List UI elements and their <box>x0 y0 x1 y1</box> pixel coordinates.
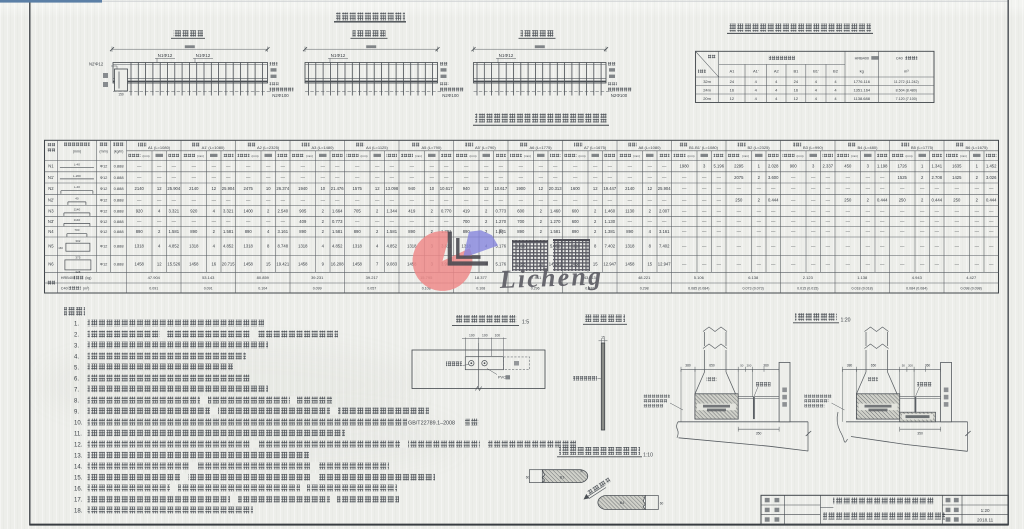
svg-text:—: — <box>573 197 578 202</box>
svg-text:890: 890 <box>354 229 362 234</box>
svg-text:250: 250 <box>953 197 961 202</box>
svg-text:0.888: 0.888 <box>114 175 125 180</box>
svg-text:—: — <box>880 186 885 191</box>
svg-text:15.: 15. <box>74 476 83 482</box>
svg-text:—: — <box>682 229 687 234</box>
svg-text:700: 700 <box>74 228 79 232</box>
svg-text:—: — <box>519 175 524 180</box>
svg-text:24m: 24m <box>703 87 711 92</box>
svg-text:2: 2 <box>322 229 325 234</box>
svg-text:60: 60 <box>526 476 530 480</box>
svg-text:7: 7 <box>376 261 379 266</box>
svg-text:2018.11: 2018.11 <box>977 518 994 523</box>
svg-text:10.617: 10.617 <box>440 186 453 191</box>
svg-text:250: 250 <box>899 197 907 202</box>
svg-text:—: — <box>757 186 762 191</box>
svg-text:4: 4 <box>815 79 818 84</box>
svg-text:—: — <box>826 186 831 191</box>
svg-text:0.888: 0.888 <box>114 208 125 213</box>
svg-text:B4 (L=480): B4 (L=480) <box>858 145 879 150</box>
svg-text:—: — <box>648 164 653 169</box>
svg-text:7.: 7. <box>74 388 79 394</box>
svg-text:—: — <box>410 197 415 202</box>
svg-text:53.143: 53.143 <box>202 275 215 280</box>
svg-text:4.: 4. <box>74 355 79 361</box>
svg-text:12.: 12. <box>74 443 83 449</box>
svg-text:890: 890 <box>245 229 253 234</box>
svg-text:60: 60 <box>660 502 664 506</box>
svg-text:—: — <box>390 219 395 224</box>
svg-text:20m: 20m <box>703 96 711 101</box>
svg-text:—: — <box>444 219 449 224</box>
svg-text:2: 2 <box>267 208 270 213</box>
svg-text:—: — <box>975 244 980 249</box>
svg-text:—: — <box>519 164 524 169</box>
svg-text:—: — <box>519 197 524 202</box>
svg-text:—: — <box>900 261 905 266</box>
svg-text:—: — <box>444 164 449 169</box>
svg-text:—: — <box>464 197 469 202</box>
svg-text:—: — <box>539 197 544 202</box>
svg-text:1: 1 <box>976 164 979 169</box>
svg-text:0.091: 0.091 <box>204 287 213 291</box>
svg-text:4.852: 4.852 <box>169 244 180 249</box>
svg-text:—: — <box>935 261 940 266</box>
svg-text:11.: 11. <box>74 432 82 438</box>
svg-text:—: — <box>355 197 360 202</box>
svg-text:—: — <box>866 229 871 234</box>
svg-text:1318: 1318 <box>625 244 635 249</box>
svg-text:1.270: 1.270 <box>550 219 561 224</box>
svg-text:—: — <box>880 175 885 180</box>
svg-text:4.943: 4.943 <box>912 275 923 280</box>
svg-text:302: 302 <box>75 239 80 243</box>
svg-text:17.: 17. <box>74 498 83 504</box>
svg-text:—: — <box>880 229 885 234</box>
svg-text:700: 700 <box>463 219 471 224</box>
svg-text:21.476: 21.476 <box>331 186 344 191</box>
svg-text:1.581: 1.581 <box>332 229 343 234</box>
svg-text:—: — <box>771 261 776 266</box>
svg-text:1: 1 <box>921 164 924 169</box>
svg-text:3: 3 <box>703 164 706 169</box>
svg-text:4: 4 <box>376 244 379 249</box>
svg-text:380: 380 <box>685 363 691 367</box>
svg-text:3: 3 <box>812 164 815 169</box>
svg-text:18.377: 18.377 <box>475 275 488 280</box>
svg-text:—: — <box>975 186 980 191</box>
svg-text:360: 360 <box>763 363 769 367</box>
svg-text:B1: B1 <box>793 68 799 73</box>
svg-text:—: — <box>900 219 905 224</box>
svg-text:1318: 1318 <box>353 244 363 249</box>
svg-text:12: 12 <box>593 186 598 191</box>
svg-text:—: — <box>375 164 380 169</box>
svg-text:16: 16 <box>211 261 216 266</box>
svg-text:9.083: 9.083 <box>387 261 398 266</box>
svg-text:(mm): (mm) <box>143 154 150 158</box>
svg-text:L-40: L-40 <box>74 163 80 167</box>
svg-text:2: 2 <box>649 208 652 213</box>
svg-text:0.015 (0.015): 0.015 (0.015) <box>797 287 818 291</box>
svg-text:2: 2 <box>867 197 870 202</box>
svg-text:—: — <box>648 175 653 180</box>
svg-text:—: — <box>172 219 177 224</box>
svg-text:13.098: 13.098 <box>385 186 398 191</box>
svg-text:(mm): (mm) <box>579 154 586 158</box>
svg-text:—: — <box>410 219 415 224</box>
svg-text:80.859: 80.859 <box>257 275 270 280</box>
svg-text:1.581: 1.581 <box>387 229 398 234</box>
svg-text:—: — <box>662 197 667 202</box>
svg-text:—: — <box>301 175 306 180</box>
svg-text:—: — <box>192 219 197 224</box>
svg-text:A7 (L=1675): A7 (L=1675) <box>584 145 607 150</box>
svg-text:—: — <box>539 164 544 169</box>
svg-text:A1: A1 <box>729 68 735 73</box>
svg-text:—: — <box>791 197 796 202</box>
svg-text:—: — <box>791 208 796 213</box>
svg-text:1.581: 1.581 <box>550 229 561 234</box>
svg-text:N1: N1 <box>48 164 54 169</box>
svg-text:—: — <box>484 164 489 169</box>
svg-text:—: — <box>662 164 667 169</box>
svg-text:0.057: 0.057 <box>367 287 376 291</box>
svg-text:—: — <box>717 219 722 224</box>
svg-text:—: — <box>375 197 380 202</box>
svg-text:—: — <box>811 208 816 213</box>
svg-text:0.104: 0.104 <box>258 287 267 291</box>
svg-text:16: 16 <box>730 87 735 92</box>
svg-text:—: — <box>608 164 613 169</box>
svg-text:N2Φ100: N2Φ100 <box>272 93 289 98</box>
svg-text:—: — <box>608 197 613 202</box>
svg-text:1525: 1525 <box>898 175 908 180</box>
svg-text:—: — <box>826 261 831 266</box>
svg-text:HRB400: HRB400 <box>855 57 869 61</box>
svg-text:N2Φ100: N2Φ100 <box>611 93 628 98</box>
svg-text:—: — <box>390 175 395 180</box>
svg-text:—: — <box>281 175 286 180</box>
svg-text:—: — <box>920 186 925 191</box>
svg-text:—: — <box>499 197 504 202</box>
svg-text:920: 920 <box>136 208 144 213</box>
svg-text:2140: 2140 <box>625 186 635 191</box>
svg-text:4: 4 <box>834 79 837 84</box>
svg-text:1980: 1980 <box>680 164 690 169</box>
svg-text:1.344: 1.344 <box>387 208 398 213</box>
svg-text:—: — <box>682 244 687 249</box>
svg-text:12: 12 <box>647 186 652 191</box>
svg-text:—: — <box>499 175 504 180</box>
svg-text:—: — <box>157 219 162 224</box>
svg-text:—: — <box>628 164 633 169</box>
svg-text:10.: 10. <box>74 421 83 427</box>
svg-text:—: — <box>246 164 251 169</box>
svg-text:N2'Φ12: N2'Φ12 <box>89 62 104 67</box>
svg-text:GB/T22789.1–2008: GB/T22789.1–2008 <box>408 421 455 427</box>
svg-text:Φ12: Φ12 <box>100 164 108 169</box>
svg-text:—: — <box>935 229 940 234</box>
svg-text:2: 2 <box>921 175 924 180</box>
svg-text:12: 12 <box>375 186 380 191</box>
svg-text:—: — <box>702 208 707 213</box>
svg-text:4: 4 <box>213 244 216 249</box>
svg-text:375: 375 <box>75 256 80 260</box>
svg-text:25.904: 25.904 <box>658 186 671 191</box>
svg-text:419: 419 <box>408 208 416 213</box>
svg-text:B2 (L=2325): B2 (L=2325) <box>748 145 771 150</box>
svg-text:—: — <box>846 244 851 249</box>
svg-text:2.708: 2.708 <box>932 175 943 180</box>
svg-text:(mm): (mm) <box>252 154 259 158</box>
svg-text:—: — <box>771 229 776 234</box>
svg-text:2.540: 2.540 <box>278 208 289 213</box>
svg-text:12: 12 <box>211 186 216 191</box>
svg-text:A2 (L=2325): A2 (L=2325) <box>257 145 280 150</box>
svg-text:1.460: 1.460 <box>605 208 616 213</box>
svg-text:1130: 1130 <box>625 208 635 213</box>
svg-text:Φ12: Φ12 <box>100 208 108 213</box>
svg-text:N1Φ12: N1Φ12 <box>196 53 211 58</box>
svg-text:4: 4 <box>322 244 325 249</box>
svg-text:—: — <box>212 164 217 169</box>
svg-text:—: — <box>771 186 776 191</box>
svg-text:0.018 (0.018): 0.018 (0.018) <box>852 287 873 291</box>
svg-text:B1.B1' (L=1080): B1.B1' (L=1080) <box>689 145 719 150</box>
svg-text:—: — <box>935 186 940 191</box>
svg-text:8: 8 <box>594 244 597 249</box>
svg-text:1.: 1. <box>74 322 79 328</box>
svg-text:1.138: 1.138 <box>857 275 868 280</box>
svg-text:kg: kg <box>860 68 864 73</box>
svg-text:—: — <box>662 219 667 224</box>
svg-text:2: 2 <box>758 175 761 180</box>
svg-text:—: — <box>321 197 326 202</box>
svg-text:—: — <box>662 175 667 180</box>
svg-text:—: — <box>920 244 925 249</box>
svg-text:160: 160 <box>58 246 63 250</box>
svg-text:—: — <box>717 197 722 202</box>
svg-text:15.526: 15.526 <box>167 261 180 266</box>
svg-text:—: — <box>192 197 197 202</box>
svg-text:—: — <box>920 219 925 224</box>
svg-text:—: — <box>846 208 851 213</box>
svg-text:—: — <box>157 164 162 169</box>
svg-text:PVC: PVC <box>498 376 506 380</box>
svg-text:—: — <box>935 244 940 249</box>
svg-text:0.773: 0.773 <box>332 219 343 224</box>
svg-text:1.460: 1.460 <box>550 208 561 213</box>
svg-text:39.217: 39.217 <box>366 275 379 280</box>
svg-text:1.381: 1.381 <box>605 229 616 234</box>
svg-text:N4: N4 <box>48 229 54 234</box>
svg-text:1:10: 1:10 <box>643 453 653 459</box>
svg-text:0.888: 0.888 <box>114 261 125 266</box>
svg-text:—: — <box>791 244 796 249</box>
svg-text:—: — <box>553 164 558 169</box>
svg-text:(mm): (mm) <box>73 150 81 154</box>
svg-text:—: — <box>593 175 598 180</box>
svg-text:—: — <box>737 219 742 224</box>
svg-text:—: — <box>900 244 905 249</box>
svg-text:10.617: 10.617 <box>494 186 507 191</box>
svg-text:—: — <box>811 229 816 234</box>
svg-text:—: — <box>846 261 851 266</box>
svg-text:—: — <box>266 175 271 180</box>
svg-text:1140: 1140 <box>74 207 81 211</box>
svg-text:N1': N1' <box>48 175 54 180</box>
svg-text:2: 2 <box>594 208 597 213</box>
svg-text:0.888: 0.888 <box>114 197 125 202</box>
svg-text:—: — <box>172 197 177 202</box>
svg-text:890: 890 <box>299 229 307 234</box>
svg-text:2295: 2295 <box>734 164 744 169</box>
svg-text:8: 8 <box>267 244 270 249</box>
svg-text:200: 200 <box>747 364 752 368</box>
svg-text:940: 940 <box>408 186 416 191</box>
svg-text:—: — <box>375 219 380 224</box>
svg-text:—: — <box>682 219 687 224</box>
svg-text:2.: 2. <box>74 333 79 339</box>
svg-text:—: — <box>791 186 796 191</box>
svg-text:705: 705 <box>354 208 362 213</box>
svg-text:890: 890 <box>626 229 634 234</box>
svg-text:Φ12: Φ12 <box>100 229 108 234</box>
svg-text:890: 890 <box>190 229 198 234</box>
svg-text:—: — <box>900 208 905 213</box>
svg-text:350: 350 <box>917 432 923 436</box>
svg-text:10: 10 <box>429 186 434 191</box>
svg-text:—: — <box>989 229 994 234</box>
svg-text:—: — <box>682 186 687 191</box>
svg-text:2: 2 <box>594 229 597 234</box>
svg-text:2.007: 2.007 <box>659 208 670 213</box>
svg-text:—: — <box>266 164 271 169</box>
svg-text:HRB400: HRB400 <box>61 276 75 280</box>
svg-text:—: — <box>826 244 831 249</box>
svg-text:24: 24 <box>730 79 735 84</box>
svg-text:4: 4 <box>213 208 216 213</box>
svg-text:2075: 2075 <box>734 175 744 180</box>
svg-text:890: 890 <box>517 229 525 234</box>
svg-text:—: — <box>975 208 980 213</box>
svg-text:—: — <box>499 164 504 169</box>
svg-text:—: — <box>989 261 994 266</box>
svg-text:(mm): (mm) <box>960 154 967 158</box>
svg-text:—: — <box>281 164 286 169</box>
svg-text:12: 12 <box>730 96 735 101</box>
svg-text:—: — <box>717 261 722 266</box>
svg-text:—: — <box>771 244 776 249</box>
svg-text:(mm): (mm) <box>415 154 422 158</box>
svg-text:—: — <box>573 175 578 180</box>
svg-text:20.313: 20.313 <box>549 186 562 191</box>
svg-text:(kg/m): (kg/m) <box>114 150 124 154</box>
svg-text:—: — <box>464 164 469 169</box>
svg-text:N2': N2' <box>48 197 54 202</box>
svg-text:N2: N2 <box>48 186 54 191</box>
svg-text:—: — <box>811 175 816 180</box>
svg-text:11.272 (11.242): 11.272 (11.242) <box>894 80 919 84</box>
svg-text:1.130: 1.130 <box>605 219 616 224</box>
svg-text:—: — <box>246 197 251 202</box>
svg-text:—: — <box>430 197 435 202</box>
svg-text:C40: C40 <box>896 57 903 61</box>
svg-text:—: — <box>880 219 885 224</box>
svg-text:2: 2 <box>485 219 488 224</box>
svg-text:1351.164: 1351.164 <box>853 87 870 92</box>
svg-text:1318: 1318 <box>298 244 308 249</box>
svg-text:1.581: 1.581 <box>223 229 234 234</box>
svg-text:B6 (L=1675): B6 (L=1675) <box>966 145 989 150</box>
svg-text:4: 4 <box>834 87 837 92</box>
svg-text:9: 9 <box>322 261 325 266</box>
svg-text:1940: 1940 <box>298 186 308 191</box>
svg-text:A2: A2 <box>774 68 780 73</box>
svg-text:32m: 32m <box>703 79 711 84</box>
svg-text:—: — <box>757 244 762 249</box>
svg-text:1318: 1318 <box>244 244 254 249</box>
svg-text:6.: 6. <box>74 377 79 383</box>
svg-text:—: — <box>880 244 885 249</box>
svg-text:—: — <box>975 261 980 266</box>
svg-text:—: — <box>172 164 177 169</box>
svg-text:7.120 (7.100): 7.120 (7.100) <box>896 97 917 101</box>
svg-text:B3: B3 <box>560 475 565 479</box>
svg-text:1458: 1458 <box>244 261 254 266</box>
svg-text:360: 360 <box>925 363 931 367</box>
svg-text:—: — <box>226 197 231 202</box>
svg-text:Φ12: Φ12 <box>100 244 108 249</box>
svg-text:1458: 1458 <box>189 261 199 266</box>
svg-text:—: — <box>157 175 162 180</box>
svg-text:—: — <box>335 197 340 202</box>
svg-text:0.084 (0.084): 0.084 (0.084) <box>906 287 927 291</box>
svg-text:—: — <box>935 219 940 224</box>
svg-text:1140: 1140 <box>74 218 81 222</box>
svg-text:1600: 1600 <box>571 186 581 191</box>
svg-text:890: 890 <box>572 229 580 234</box>
svg-text:890: 890 <box>408 229 416 234</box>
svg-text:—: — <box>717 208 722 213</box>
svg-text:5.196: 5.196 <box>714 164 725 169</box>
svg-text:—: — <box>593 164 598 169</box>
svg-text:16.208: 16.208 <box>331 261 344 266</box>
svg-text:2: 2 <box>540 208 543 213</box>
svg-text:0.298: 0.298 <box>640 287 649 291</box>
svg-text:—: — <box>702 197 707 202</box>
svg-text:—: — <box>539 175 544 180</box>
svg-text:Licheng: Licheng <box>498 261 603 294</box>
svg-text:—: — <box>826 175 831 180</box>
svg-text:A1': A1' <box>753 68 759 73</box>
svg-text:Φ12: Φ12 <box>100 197 108 202</box>
svg-text:Φ12: Φ12 <box>100 219 108 224</box>
svg-text:—: — <box>212 175 217 180</box>
svg-text:1635: 1635 <box>952 164 962 169</box>
svg-text:3.161: 3.161 <box>278 229 289 234</box>
svg-text:(mm): (mm) <box>306 154 313 158</box>
svg-text:1425: 1425 <box>952 175 962 180</box>
svg-text:(mm): (mm) <box>361 154 368 158</box>
svg-text:2.123: 2.123 <box>803 275 814 280</box>
svg-text:—: — <box>955 208 960 213</box>
svg-text:2: 2 <box>322 219 325 224</box>
svg-text:—: — <box>955 244 960 249</box>
svg-text:—: — <box>648 197 653 202</box>
svg-text:B4: B4 <box>620 501 625 505</box>
